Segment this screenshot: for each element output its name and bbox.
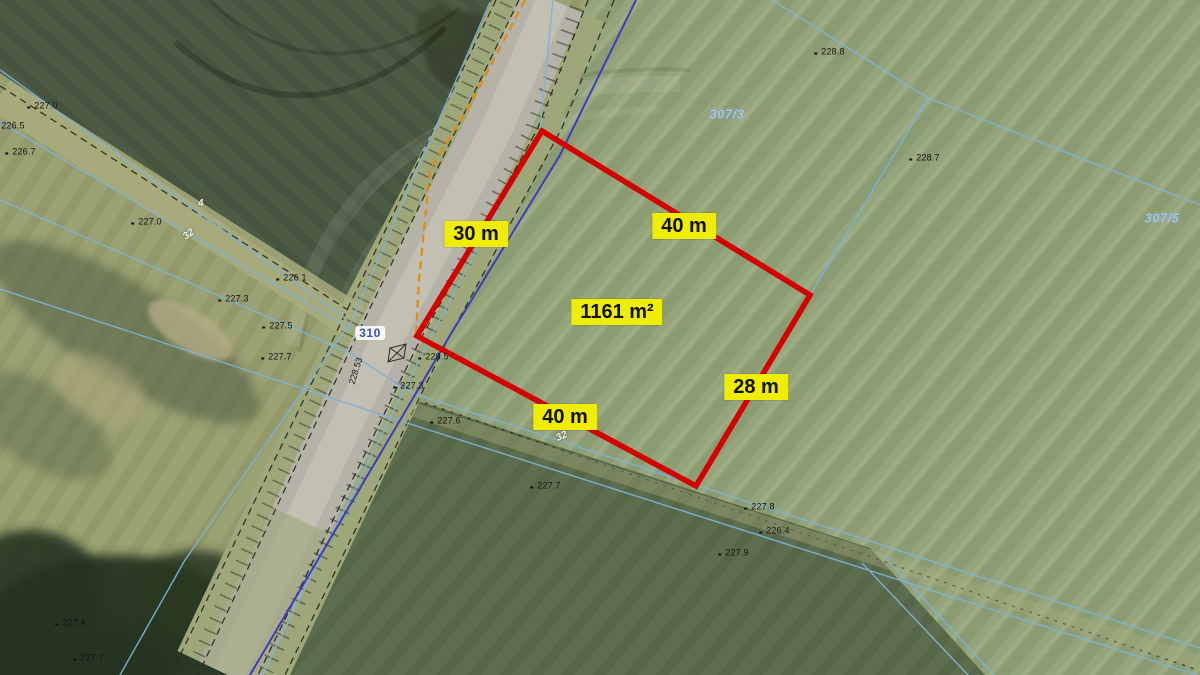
plot-area-label: 1161 m² <box>571 299 662 325</box>
elevation-label: 227.3 <box>400 382 424 391</box>
elevation-label: 227.8 <box>751 503 775 512</box>
elevation-label: 227.7 <box>268 353 292 362</box>
elevation-label: 226.4 <box>766 527 790 536</box>
elevation-label: 227.4 <box>62 619 86 628</box>
aerial-map <box>0 0 1200 675</box>
elevation-label: 227.0 <box>34 102 58 111</box>
elevation-label: 228.7 <box>916 154 940 163</box>
elevation-label: 227.9 <box>725 549 749 558</box>
elevation-label: 227.7 <box>80 654 104 663</box>
elevation-label: 226.5 <box>1 122 25 131</box>
elevation-label: 226.1 <box>283 274 307 283</box>
path-marker: 4 <box>198 199 205 210</box>
elevation-label: 227.5 <box>269 322 293 331</box>
elevation-label: 227.7 <box>537 482 561 491</box>
measure-label-left-30m: 30 m <box>444 221 508 247</box>
parcel-number-307-5: 307/5 <box>1144 212 1179 225</box>
elevation-label: 227.3 <box>225 295 249 304</box>
elevation-label: 227.6 <box>437 417 461 426</box>
parcel-number-307-3: 307/3 <box>709 108 744 121</box>
elevation-label: 227.0 <box>138 218 162 227</box>
measure-label-top-40m: 40 m <box>652 213 716 239</box>
parcel-number-310: 310 <box>355 326 385 340</box>
measure-label-bottom-40m: 40 m <box>533 404 597 430</box>
map-canvas: 227.0 226.5 226.7 227.0 226.1 227.3 227.… <box>0 0 1200 675</box>
measure-label-right-28m: 28 m <box>724 374 788 400</box>
fields-layer <box>0 0 1200 675</box>
elevation-label: 228.8 <box>821 48 845 57</box>
elevation-label: 226.7 <box>12 148 36 157</box>
elevation-label: 228.5 <box>425 353 449 362</box>
